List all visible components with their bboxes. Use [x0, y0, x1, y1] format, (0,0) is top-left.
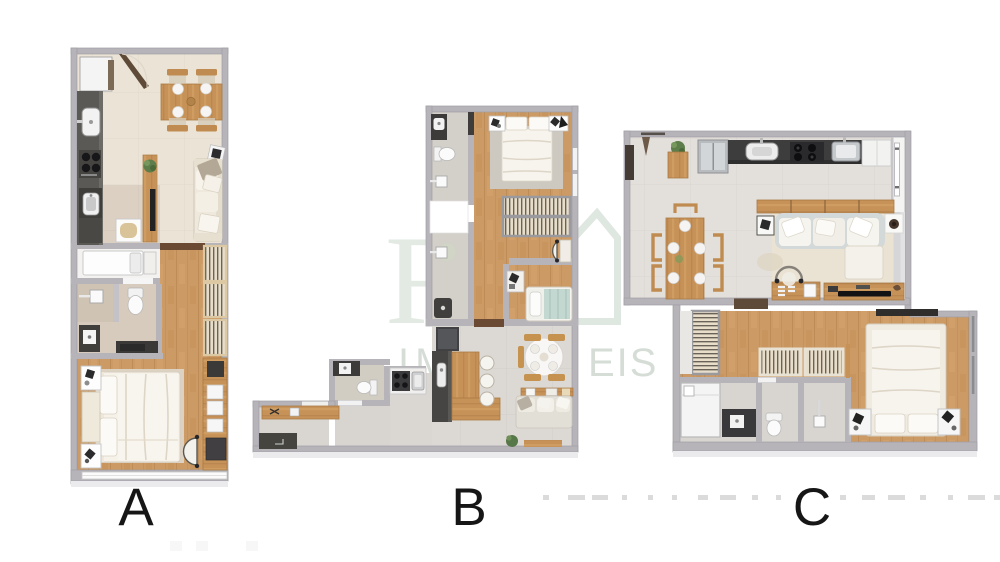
svg-text:EIS: EIS — [588, 341, 658, 385]
svg-text:A: A — [118, 478, 154, 537]
svg-text:B: B — [451, 478, 486, 537]
svg-text:C: C — [793, 478, 831, 537]
